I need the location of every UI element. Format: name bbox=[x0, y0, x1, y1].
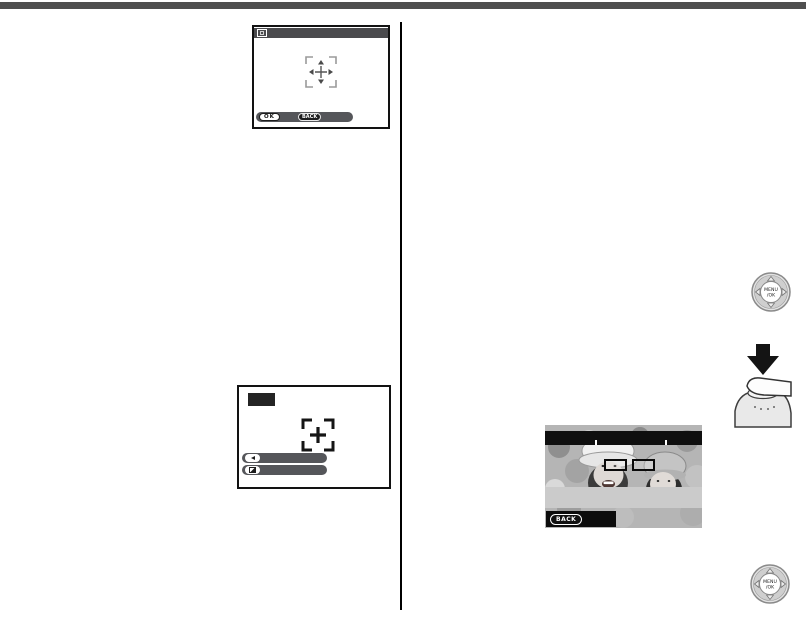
focus-frame-crosshair-icon bbox=[300, 51, 342, 93]
menu-ok-button: MENU /OK bbox=[751, 272, 791, 312]
back-button-label: BACK bbox=[550, 514, 582, 525]
lcd-option-bar bbox=[242, 453, 327, 463]
shutter-press-illustration bbox=[733, 343, 793, 428]
eye-detection-frame bbox=[604, 459, 627, 471]
exposure-compensation-icon bbox=[245, 466, 260, 474]
menu-ok-button: MENU /OK bbox=[750, 564, 790, 604]
left-arrow-icon bbox=[245, 454, 260, 462]
info-bar-tick bbox=[595, 440, 597, 445]
photo-menu-band bbox=[545, 487, 702, 508]
lcd-focus-area-select-screen: OK BACK bbox=[252, 25, 390, 129]
back-button-label: BACK bbox=[298, 113, 321, 121]
mode-tile-icon bbox=[248, 393, 275, 406]
af-target-brackets-icon bbox=[299, 416, 337, 454]
menu-ok-label-line2: /OK bbox=[766, 585, 775, 591]
photo-back-bar: BACK bbox=[546, 511, 616, 527]
menu-ok-label-line1: MENU bbox=[764, 287, 778, 293]
eye-detection-frame bbox=[632, 459, 655, 471]
ok-button-label: OK bbox=[259, 113, 280, 121]
lcd-bottombar: OK BACK bbox=[256, 112, 353, 122]
lcd-af-confirm-screen bbox=[237, 385, 391, 489]
lcd-option-bar bbox=[242, 465, 327, 475]
column-divider bbox=[400, 22, 402, 610]
lcd-playback-photo-screen: BACK bbox=[545, 425, 702, 528]
menu-ok-label-line2: /OK bbox=[767, 293, 776, 299]
manual-page: OK BACK bbox=[0, 0, 806, 617]
down-arrow-icon bbox=[747, 344, 779, 375]
af-area-select-icon bbox=[257, 29, 267, 37]
lcd-titlebar bbox=[254, 28, 388, 38]
finger bbox=[747, 378, 791, 396]
menu-ok-label-line1: MENU bbox=[763, 579, 777, 585]
page-top-rule bbox=[0, 2, 806, 9]
info-bar-tick bbox=[665, 440, 667, 445]
photo-info-bar bbox=[545, 431, 702, 445]
